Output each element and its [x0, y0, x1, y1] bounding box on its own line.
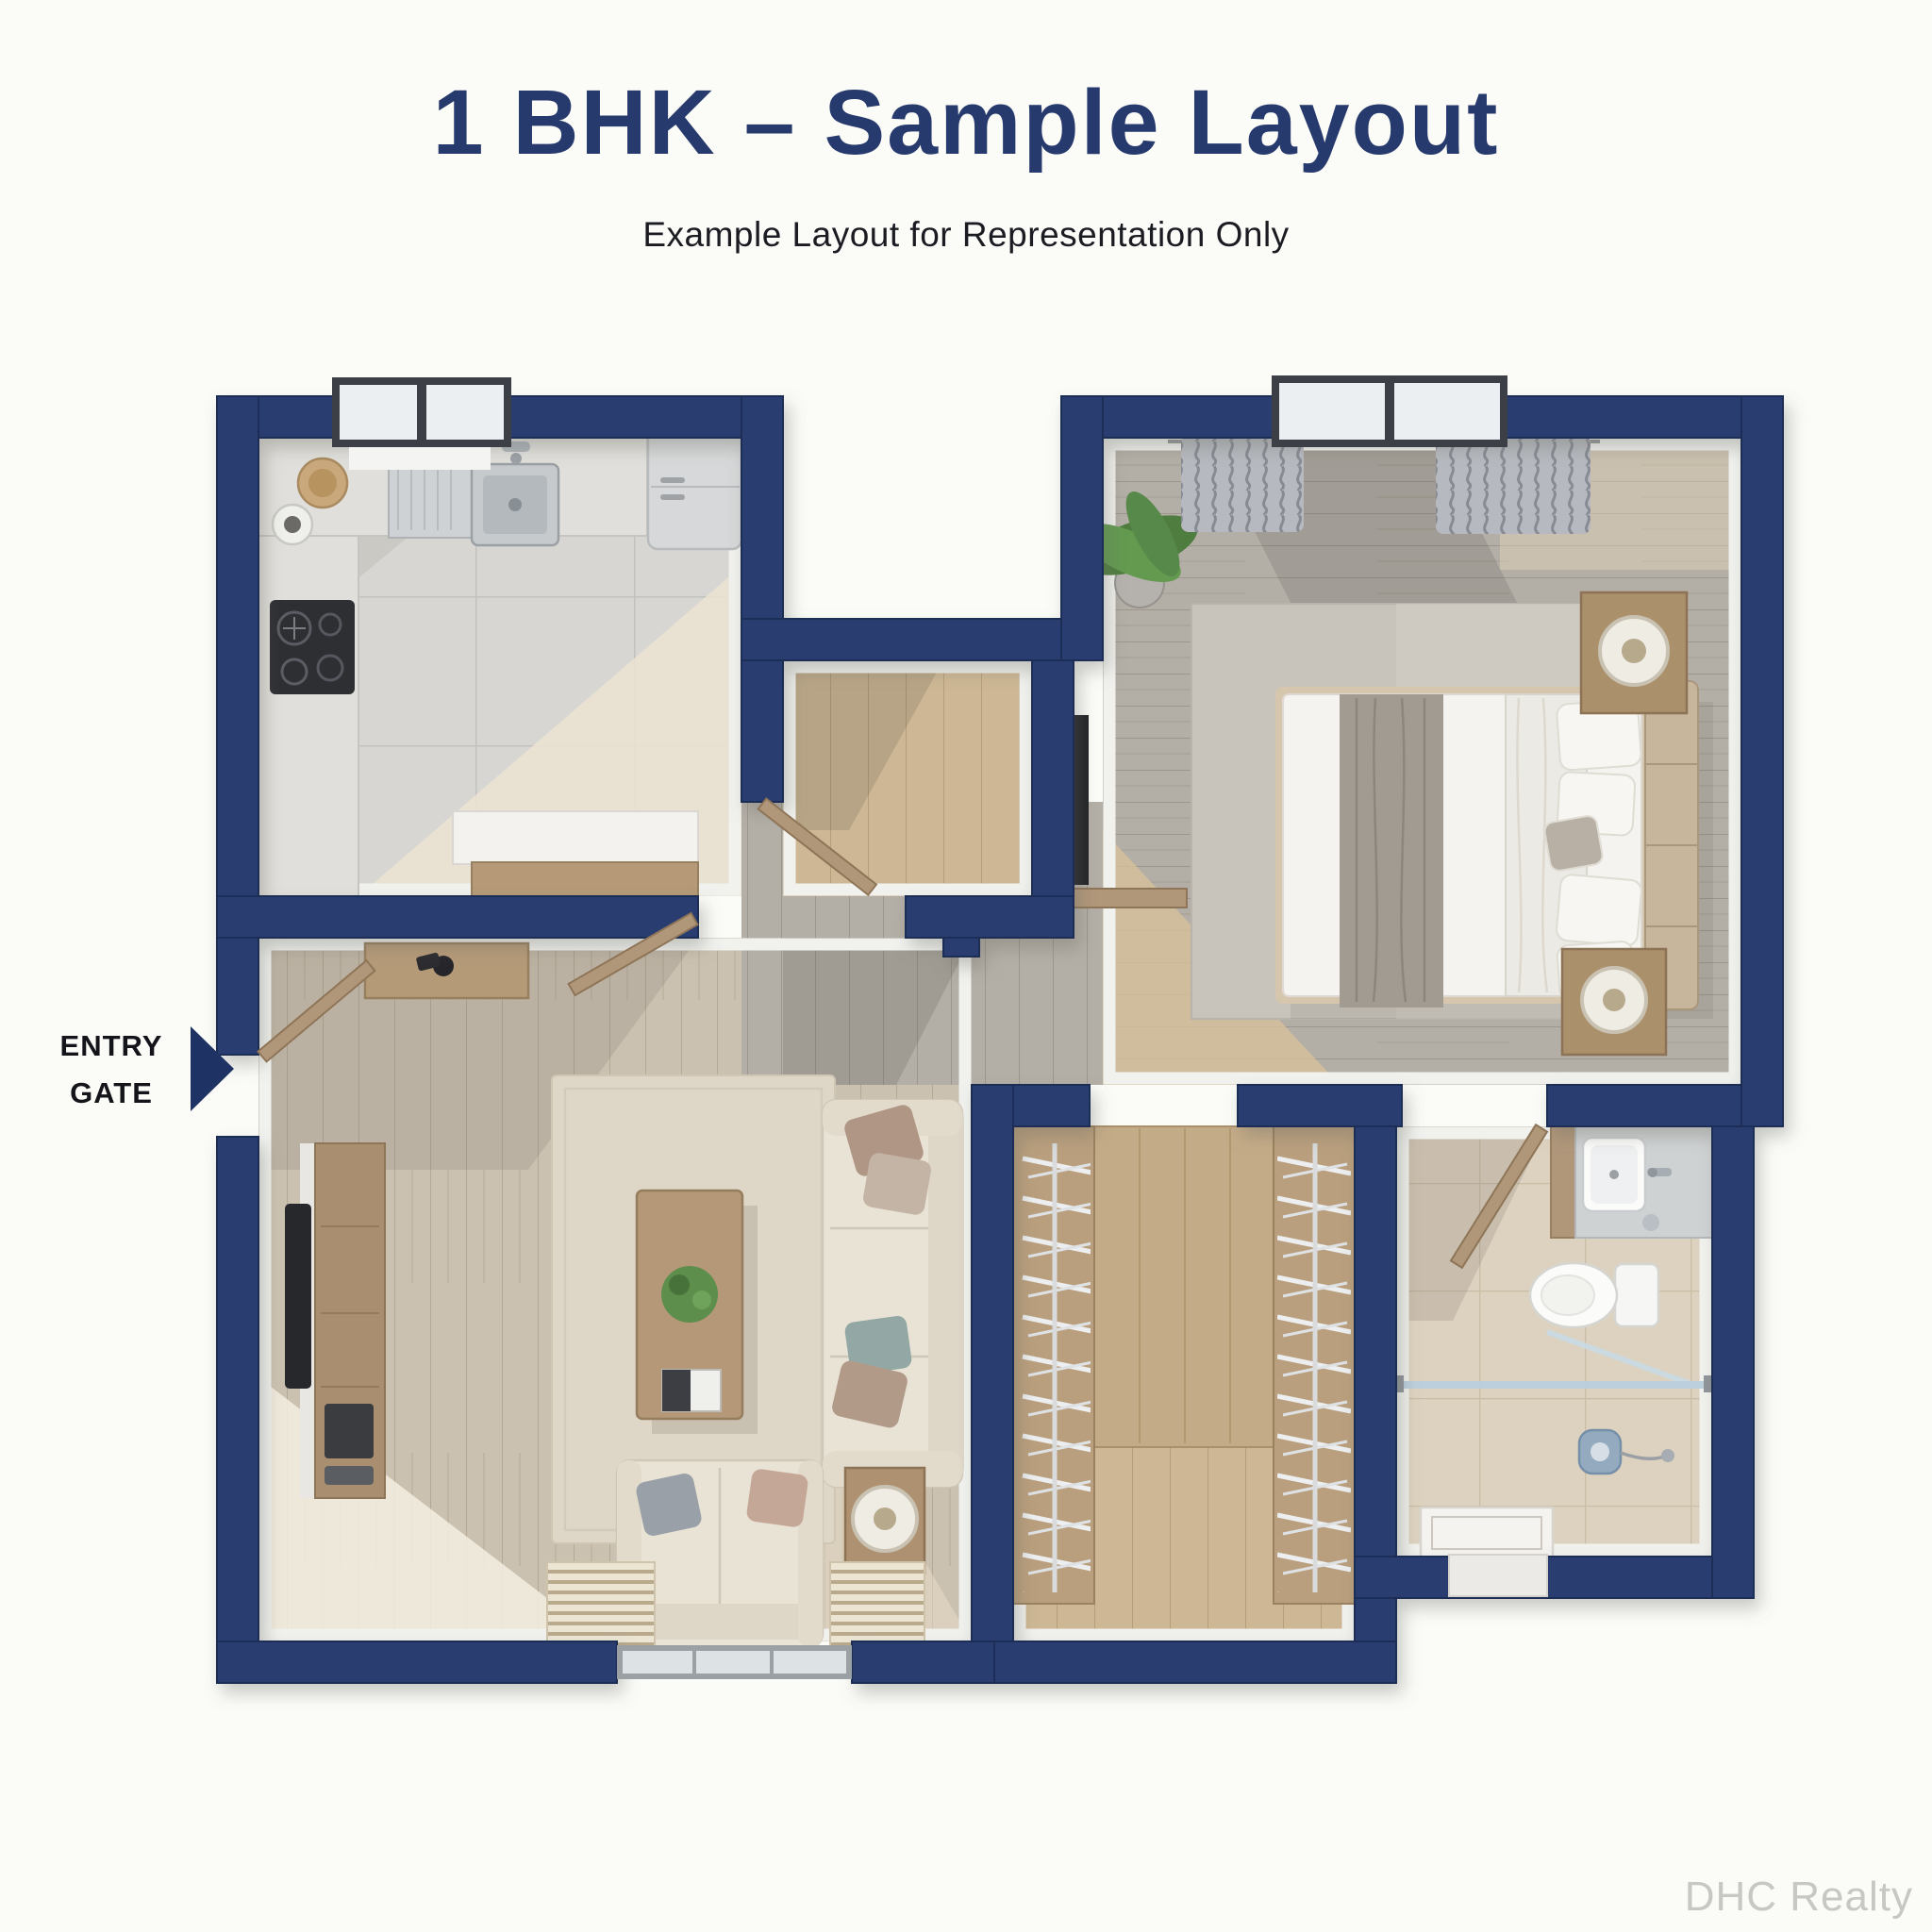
wall-living-left-lower [217, 1137, 258, 1683]
wall-living-bottom-left [217, 1641, 617, 1683]
closet-right [1274, 1126, 1355, 1604]
wall-bathroom-bottom [1355, 1557, 1754, 1598]
refrigerator [648, 425, 741, 549]
nightstand-bottom [1562, 949, 1666, 1055]
book [662, 1370, 721, 1411]
coffee-table [637, 1191, 742, 1419]
wall-wardrobe-right [1355, 1126, 1396, 1683]
av-device [325, 1404, 374, 1458]
wall-living-left-upper [217, 938, 258, 1055]
wall-bathroom-top [1547, 1085, 1741, 1126]
television [285, 1204, 311, 1389]
peninsula-counter [453, 811, 698, 896]
gray-throw [1340, 694, 1443, 1008]
curtain-right [1436, 436, 1591, 534]
wall-alcove-top [741, 619, 1074, 660]
wall-kitchen-bottom [217, 896, 698, 938]
wall-living-bottom-right [852, 1641, 994, 1683]
wall-alcove-cap [943, 938, 979, 957]
kitchen-left-counter [258, 536, 358, 896]
floor-plan-svg [0, 0, 1932, 1932]
curtain-left [1181, 436, 1304, 532]
side-table-lamp [845, 1468, 924, 1574]
wall-alcove-right [1032, 660, 1074, 896]
wall-kitchen-left [217, 396, 258, 938]
bathroom-threshold [1449, 1555, 1547, 1596]
shower-tray [1421, 1507, 1553, 1558]
toilet [1530, 1263, 1658, 1327]
wall-kitchen-right [741, 396, 783, 802]
alcove-wall-tv [1074, 715, 1089, 885]
sofa-three-seater [823, 1100, 964, 1487]
wall-bedroom-left [1061, 396, 1103, 660]
wall-bathroom-right [1712, 1126, 1754, 1598]
cushion-blush [745, 1468, 808, 1528]
entry-console [365, 943, 528, 998]
wall-wardrobe-left [972, 1085, 1013, 1683]
soap-dispenser [1642, 1214, 1659, 1231]
living-window [617, 1645, 852, 1679]
gas-stove [270, 600, 355, 694]
closet-left [1013, 1126, 1094, 1604]
alcove-shelf [1074, 889, 1187, 908]
wall-bedroom-right [1741, 396, 1783, 1126]
glass-partition [1396, 1381, 1712, 1389]
wall-wardrobe-bottom [994, 1641, 1396, 1683]
kitchen-window [332, 377, 511, 470]
floor-plan-page: 1 BHK – Sample Layout Example Layout for… [0, 0, 1932, 1932]
bedroom-window [1272, 375, 1507, 447]
nightstand-top [1581, 592, 1687, 713]
wall-wardrobe-top-right [1238, 1085, 1402, 1126]
cushion-taupe [861, 1152, 932, 1217]
vanity [1551, 1126, 1712, 1238]
wall-alcove-bottom [906, 896, 1074, 938]
